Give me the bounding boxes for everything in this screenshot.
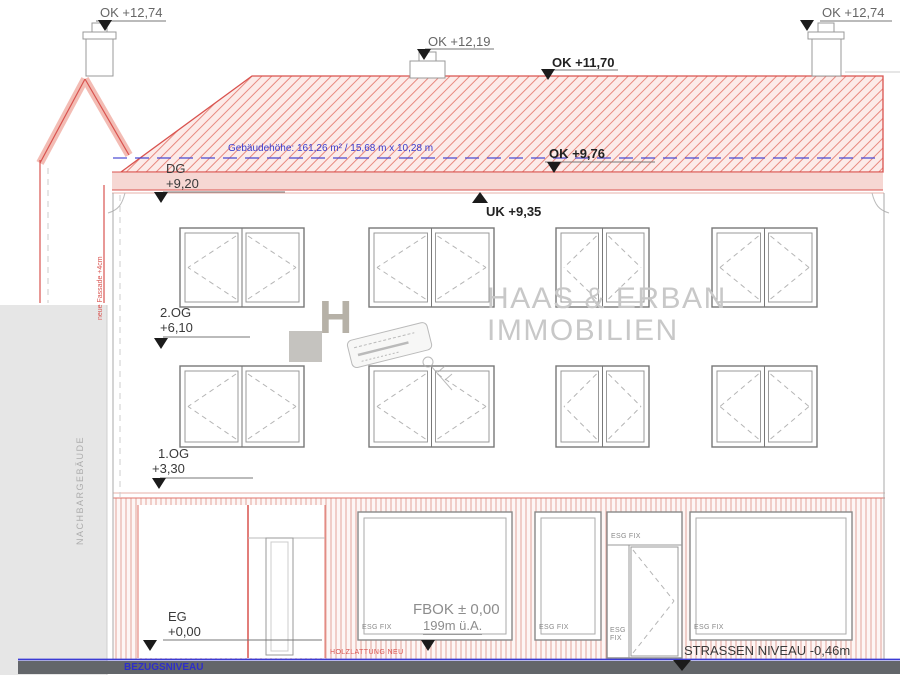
building-height-note: Gebäudehöhe: 161,26 m² / 15,68 m x 10,28…: [228, 143, 433, 154]
ground-floor-openings: [138, 505, 852, 658]
glass-label-door-side: ESG FIX: [610, 627, 626, 644]
glass-label-window1: ESG FIX: [362, 624, 392, 632]
cladding-note: HOLZLATTUNG NEU: [330, 649, 404, 657]
floor-og1-level: +3,30: [152, 462, 185, 476]
elevation-drawing-page: H HAAS & ERBAN IMMOBILIEN OK +12,74 OK +…: [0, 0, 900, 675]
eaves-uk-level-label: UK +9,35: [486, 205, 541, 219]
floor-dg-label: DG: [166, 162, 186, 176]
floor-og2-level: +6,10: [160, 321, 193, 335]
neighbor-building-label: NACHBARGEBÄUDE: [76, 360, 86, 545]
fbok-altitude-label: 199m ü.A.: [423, 619, 482, 635]
floor-eg-label: EG: [168, 610, 187, 624]
glass-label-window2: ESG FIX: [539, 624, 569, 632]
floor-eg-level: +0,00: [168, 625, 201, 639]
roof-vent: [410, 52, 445, 78]
roof-fascia: [112, 172, 883, 190]
glass-label-door-transom: ESG FIX: [611, 533, 641, 541]
chimney-left-level-label: OK +12,74: [100, 6, 163, 20]
glass-label-window3: ESG FIX: [694, 624, 724, 632]
shop-window-2: [535, 512, 601, 640]
eaves-ok-level-label: OK +9,76: [549, 147, 605, 161]
chimney-right: [808, 23, 844, 76]
floor-og1-label: 1.OG: [158, 447, 189, 461]
ridge-level-label: OK +11,70: [552, 56, 615, 70]
floor-dg-level: +9,20: [166, 177, 199, 191]
facade-note: neue Fassade +4cm: [97, 210, 105, 320]
vent-level-label: OK +12,19: [428, 35, 491, 49]
chimney-right-level-label: OK +12,74: [822, 6, 885, 20]
level-marker-icon: [800, 20, 814, 31]
street-level-label: STRASSEN NIVEAU -0,46m: [684, 644, 850, 658]
entry-door-panel: [266, 538, 293, 655]
elevation-drawing: [0, 0, 900, 675]
datum-level-label: BEZUGSNIVEAU: [124, 662, 203, 673]
floor-og2-label: 2.OG: [160, 306, 191, 320]
chimney-left: [83, 23, 116, 76]
fbok-level-label: FBOK ± 0,00: [413, 602, 500, 619]
neighbor-building-block: [0, 305, 107, 675]
shop-window-3: [690, 512, 852, 640]
